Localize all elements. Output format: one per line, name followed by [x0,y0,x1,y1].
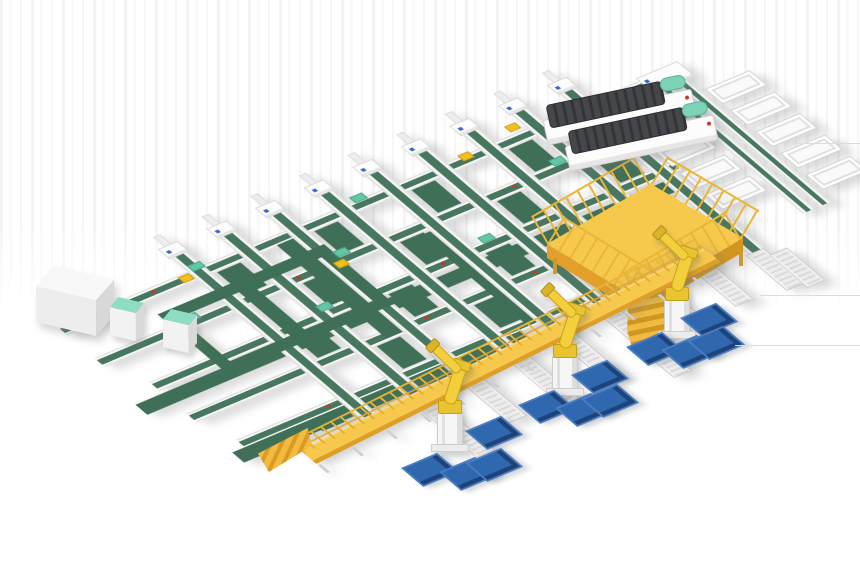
robot-upper-arm [443,362,468,406]
electrical-cabinet [36,266,114,336]
robot-upper-arm [558,306,583,350]
horizontal-line-artifact [735,345,860,346]
palletizing-robot [415,350,485,456]
robot-pedestal [437,412,463,445]
platform-leg [553,258,557,274]
platform-leg [739,252,743,266]
horizontal-line-artifact [760,295,860,296]
robot-upper-arm [670,249,695,293]
buffer-machine [163,309,197,355]
horizontal-line-artifact [797,143,860,144]
buffer-machine [110,297,144,343]
factory-render-scene [0,0,860,580]
robot-base-plate [431,444,469,452]
